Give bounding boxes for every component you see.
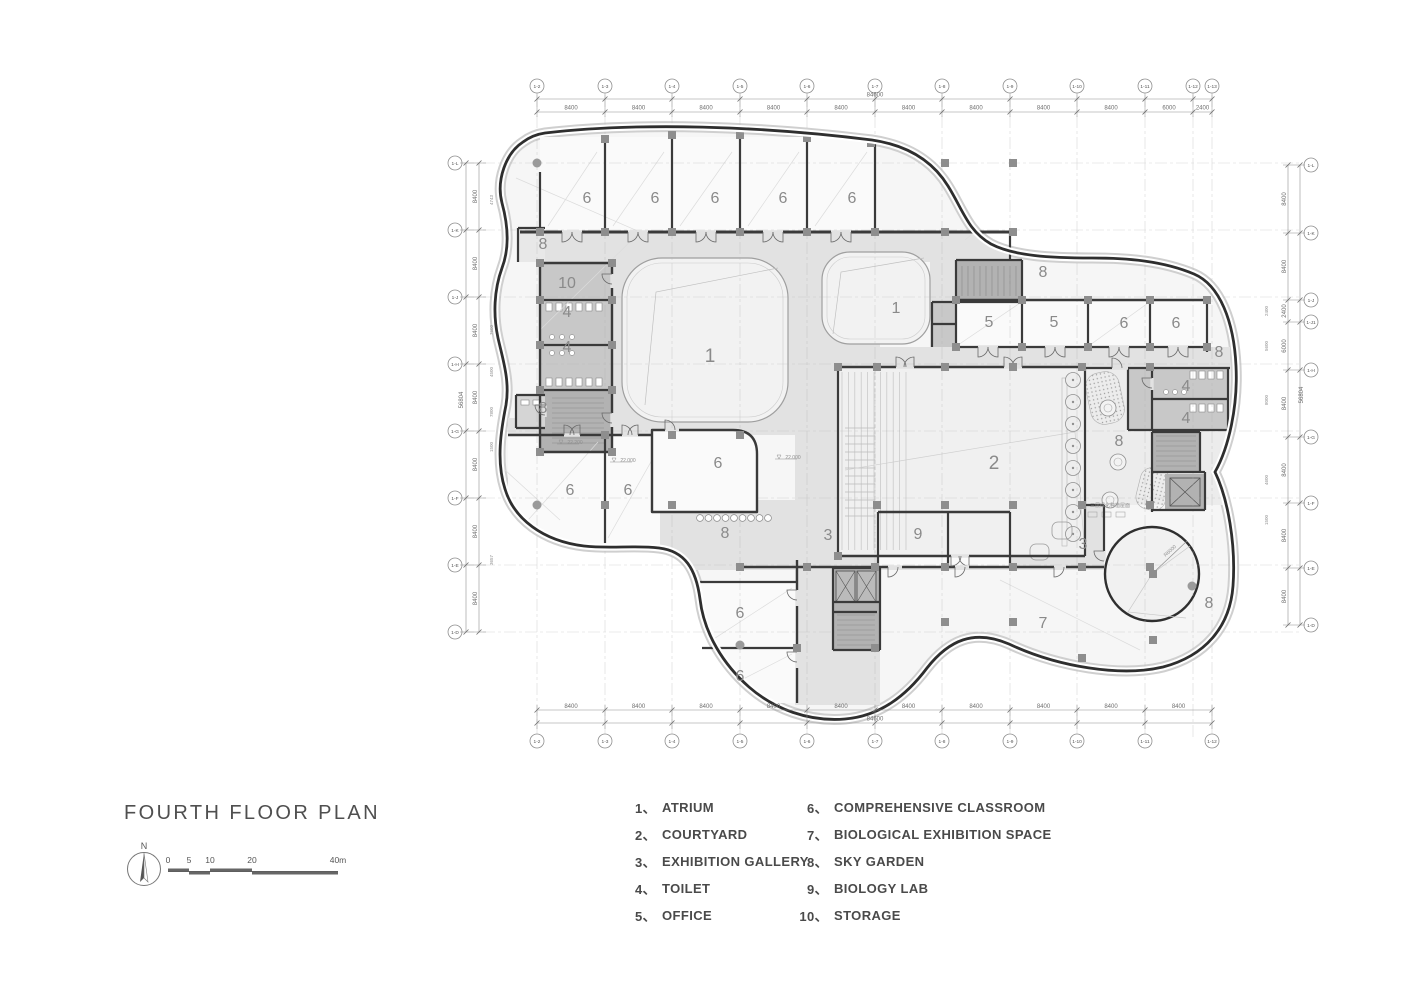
- column: [941, 501, 949, 509]
- column: [952, 296, 960, 304]
- grid-bubble-label: 1-12: [1188, 84, 1198, 90]
- column: [601, 228, 609, 236]
- dim-text: 8400: [473, 256, 479, 270]
- round-column: [533, 159, 542, 168]
- column: [668, 131, 676, 139]
- room-label: 2: [989, 453, 1000, 474]
- grid-bubble-label: 1-J: [1308, 298, 1315, 304]
- grid-bubble-label: 1-E: [1307, 566, 1314, 572]
- grid-bubble-label: 1-L: [452, 161, 459, 167]
- dim-text: 8400: [564, 704, 578, 710]
- grid-bubble-label: 1-6: [804, 739, 811, 745]
- room-label: 6: [1172, 315, 1181, 332]
- grid-bubble-label: 1-7: [872, 739, 879, 745]
- dim-text: 8400: [473, 323, 479, 337]
- room-label: 6: [848, 190, 857, 207]
- column: [608, 259, 616, 267]
- column: [608, 448, 616, 456]
- column: [1203, 343, 1211, 351]
- grid-bubble-label: 1-9: [1007, 739, 1014, 745]
- toilet-stall: [586, 303, 592, 311]
- column: [834, 552, 842, 560]
- grid-bubble-label: 1-G: [451, 429, 459, 435]
- column: [536, 386, 544, 394]
- column: [873, 363, 881, 371]
- room-label: 8: [539, 400, 548, 417]
- room-label: 9: [914, 526, 923, 543]
- page-title: FOURTH FLOOR PLAN: [124, 802, 380, 825]
- grid-bubble-label: 1-12: [1207, 739, 1217, 745]
- fixture: [521, 400, 529, 405]
- column: [536, 228, 544, 236]
- legend-label: OFFICE: [662, 908, 712, 923]
- room-label: 6: [566, 482, 575, 499]
- annotation: 22.000: [785, 455, 801, 461]
- column: [601, 431, 609, 439]
- dim-text: 8400: [1282, 463, 1288, 477]
- dim-sub: 4743: [489, 194, 494, 205]
- toilet-stall: [1199, 371, 1205, 379]
- column: [941, 363, 949, 371]
- room-label: 6: [651, 190, 660, 207]
- sink-icon: [550, 351, 555, 356]
- column: [536, 296, 544, 304]
- column: [1009, 501, 1017, 509]
- round-column: [1188, 582, 1197, 591]
- dim-text: 8400: [1104, 704, 1118, 710]
- room-label: 6: [1120, 315, 1129, 332]
- column: [1078, 563, 1086, 571]
- column: [736, 131, 744, 139]
- stair-core: [956, 260, 1022, 302]
- toilet-stall: [1217, 404, 1223, 412]
- sink-icon: [1173, 390, 1178, 395]
- store-cell: [932, 302, 956, 324]
- annotation: 22.200: [567, 440, 583, 446]
- toilet-stall: [1208, 371, 1214, 379]
- grid-bubble-label: 1-J1: [1306, 320, 1316, 326]
- grid-bubble-label: 1-4: [669, 739, 676, 745]
- grid-bubble-label: 1-6: [804, 84, 811, 90]
- grid-bubble-label: 1-11: [1140, 739, 1150, 745]
- dim-sub: 4600: [1264, 474, 1269, 485]
- dim-sub: 5600: [1264, 340, 1269, 351]
- column: [1203, 296, 1211, 304]
- grid-bubble-label: 1-H: [1307, 368, 1315, 374]
- dim-text: 8400: [473, 189, 479, 203]
- annotation: 22.000: [620, 458, 636, 464]
- sink-icon: [1164, 390, 1169, 395]
- column: [1149, 570, 1157, 578]
- dim-text: 8400: [1282, 192, 1288, 206]
- dim-sub: 3657: [489, 554, 494, 565]
- room-label: 8: [1205, 595, 1214, 612]
- dim-total: 56804: [1299, 386, 1305, 403]
- annotation: 三层绿化种植屋面: [1090, 502, 1130, 509]
- display-table-icon: [705, 515, 712, 522]
- grid-bubble-label: 1-2: [534, 84, 541, 90]
- display-table-icon: [756, 515, 763, 522]
- grid-bubble-label: 1-F: [1307, 501, 1314, 507]
- grid-bubble-label: 1-E: [451, 563, 458, 569]
- legend-num: 7、: [784, 825, 828, 844]
- room-label: 6: [711, 190, 720, 207]
- legend-item: 7、BIOLOGICAL EXHIBITION SPACE: [784, 821, 1052, 848]
- column: [1009, 618, 1017, 626]
- legend-num: 6、: [784, 798, 828, 817]
- legend-item: 3、EXHIBITION GALLERY: [614, 848, 809, 875]
- legend-label: COURTYARD: [662, 827, 747, 842]
- dim-text: 8400: [834, 106, 848, 112]
- grid-bubble-label: 1-H: [451, 362, 459, 368]
- dim-text: 8400: [1172, 704, 1186, 710]
- grid-bubble-label: 1-J: [452, 295, 459, 301]
- legend-item: 10、STORAGE: [784, 902, 1052, 929]
- grid-bubble-label: 1-4: [669, 84, 676, 90]
- dim-text: 8400: [1282, 396, 1288, 410]
- grid-bubble-label: 1-D: [451, 630, 459, 636]
- dim-sub: 8000: [1264, 394, 1269, 405]
- room-label: 3: [824, 527, 833, 544]
- room-label: 6: [624, 482, 633, 499]
- column: [1084, 343, 1092, 351]
- column: [941, 159, 949, 167]
- room-label: 10: [558, 275, 576, 292]
- column: [608, 386, 616, 394]
- dim-total: 56804: [459, 391, 465, 408]
- column: [952, 343, 960, 351]
- legend-item: 1、ATRIUM: [614, 794, 809, 821]
- column: [736, 563, 744, 571]
- legend-num: 5、: [614, 906, 656, 925]
- dim-text: 8400: [969, 106, 983, 112]
- column: [668, 501, 676, 509]
- grid-bubble-label: 1-8: [939, 84, 946, 90]
- grid-bubble-label: 1-10: [1072, 739, 1082, 745]
- toilet-stall: [576, 378, 582, 386]
- column: [871, 644, 879, 652]
- office-band: [956, 300, 1207, 347]
- toilet-stall: [1208, 404, 1214, 412]
- grid-bubble-label: 1-F: [451, 496, 458, 502]
- room-label: 6: [736, 605, 745, 622]
- display-table-icon: [765, 515, 772, 522]
- tree-icon: [1072, 401, 1074, 403]
- legend-label: TOILET: [662, 881, 710, 896]
- tree-icon: [1072, 489, 1074, 491]
- legend-num: 2、: [614, 825, 656, 844]
- toilet-stall: [596, 378, 602, 386]
- grid-bubble-label: 1-8: [939, 739, 946, 745]
- grid-bubble-label: 1-10: [1072, 84, 1082, 90]
- column: [1009, 228, 1017, 236]
- grid-bubble-label: 1-L: [1308, 163, 1315, 169]
- column: [601, 135, 609, 143]
- grid-bubble-label: 1-9: [1007, 84, 1014, 90]
- sink-icon: [550, 335, 555, 340]
- scale-tick: 10: [205, 855, 215, 865]
- room-label: 6: [714, 455, 723, 472]
- column: [1009, 363, 1017, 371]
- column: [871, 228, 879, 236]
- legend-label: BIOLOGICAL EXHIBITION SPACE: [834, 827, 1052, 842]
- legend-label: COMPREHENSIVE CLASSROOM: [834, 800, 1045, 815]
- toilet-stall: [566, 378, 572, 386]
- column: [1018, 343, 1026, 351]
- column: [873, 501, 881, 509]
- planter-icon: [1110, 454, 1126, 470]
- column: [1078, 654, 1086, 662]
- column: [1146, 563, 1154, 571]
- toilet-stall: [576, 303, 582, 311]
- page: 666668104411855668442886668393766822.200…: [0, 0, 1414, 1000]
- dim-text: 8400: [1037, 704, 1051, 710]
- room-label: 5: [1050, 314, 1059, 331]
- tree-icon: [1072, 511, 1074, 513]
- grid-bubble-label: 1-2: [534, 739, 541, 745]
- legend-label: BIOLOGY LAB: [834, 881, 928, 896]
- column: [536, 259, 544, 267]
- column: [941, 618, 949, 626]
- dim-text: 8400: [632, 704, 646, 710]
- dim-total: 84600: [867, 93, 884, 99]
- toilet-stall: [1217, 371, 1223, 379]
- grid-bubble-label: 1-5: [737, 739, 744, 745]
- classroom-rounded: [652, 430, 757, 512]
- dim-text: 8400: [473, 591, 479, 605]
- room-label: 4: [1182, 378, 1191, 395]
- dim-text: 8400: [767, 106, 781, 112]
- tree-icon: [1072, 379, 1074, 381]
- column: [1149, 636, 1157, 644]
- dim-text: 2400: [1196, 106, 1210, 112]
- dim-text: 8400: [1282, 528, 1288, 542]
- dim-sub: 1500: [489, 441, 494, 452]
- grid-bubble-label: 1-3: [602, 84, 609, 90]
- room-label: 7: [1039, 615, 1048, 632]
- grid-bubble-label: 1-G: [1307, 435, 1315, 441]
- toilet-stall: [546, 303, 552, 311]
- legend-item: 8、SKY GARDEN: [784, 848, 1052, 875]
- scale-tick: 0: [166, 855, 171, 865]
- dim-text: 8400: [1104, 106, 1118, 112]
- legend-column-1: 1、ATRIUM 2、COURTYARD 3、EXHIBITION GALLER…: [614, 794, 809, 929]
- room-label: 4: [1182, 410, 1191, 427]
- column: [536, 341, 544, 349]
- dim-text: 8400: [1037, 106, 1051, 112]
- room-label: 8: [1039, 264, 1048, 281]
- grid-bubble-label: 1-13: [1207, 84, 1217, 90]
- room-label: 6: [583, 190, 592, 207]
- dim-sub: 7800: [489, 406, 494, 417]
- legend-label: STORAGE: [834, 908, 901, 923]
- dim-sub: 1500: [1264, 514, 1269, 525]
- dim-text: 8400: [767, 704, 781, 710]
- corridor: [540, 232, 1010, 262]
- legend-num: 3、: [614, 852, 656, 871]
- dim-text: 8400: [902, 106, 916, 112]
- north-label: N: [141, 841, 148, 851]
- grid-bubble-label: 1-5: [737, 84, 744, 90]
- scale-bar: 0 5 10 20 40m: [166, 855, 347, 875]
- dim-text: 8400: [473, 390, 479, 404]
- legend-num: 10、: [784, 906, 828, 925]
- column: [803, 563, 811, 571]
- grid-bubble-label: 1-D: [1307, 623, 1315, 629]
- display-table-icon: [748, 515, 755, 522]
- legend-item: 4、TOILET: [614, 875, 809, 902]
- room-label: 6: [779, 190, 788, 207]
- column: [1146, 296, 1154, 304]
- column: [941, 228, 949, 236]
- dim-text: 8400: [969, 704, 983, 710]
- legend-item: 5、OFFICE: [614, 902, 809, 929]
- scale-tick: 20: [247, 855, 257, 865]
- legend-item: 2、COURTYARD: [614, 821, 809, 848]
- column: [608, 296, 616, 304]
- column: [1009, 563, 1017, 571]
- legend-label: SKY GARDEN: [834, 854, 924, 869]
- column: [601, 501, 609, 509]
- column: [1009, 159, 1017, 167]
- legend-num: 8、: [784, 852, 828, 871]
- north-arrow-icon: N: [128, 841, 161, 886]
- dim-text: 8400: [699, 106, 713, 112]
- dim-sub: 2400: [1264, 305, 1269, 316]
- grid-bubble-label: 1-K: [451, 228, 459, 234]
- room-label: 4: [563, 304, 572, 321]
- room-label: 3: [1079, 536, 1088, 553]
- grid-bubble-label: 1-11: [1140, 84, 1150, 90]
- north-and-scale: N 0 5 10 20 40m: [116, 835, 416, 905]
- dim-text: 8400: [564, 106, 578, 112]
- toilet-stall: [546, 378, 552, 386]
- room-label: 8: [1215, 344, 1224, 361]
- tree-icon: [1072, 445, 1074, 447]
- column: [1146, 363, 1154, 371]
- display-table-icon: [697, 515, 704, 522]
- column: [536, 448, 544, 456]
- legend-column-2: 6、COMPREHENSIVE CLASSROOM 7、BIOLOGICAL E…: [784, 794, 1052, 929]
- legend-label: ATRIUM: [662, 800, 714, 815]
- display-table-icon: [714, 515, 721, 522]
- display-table-icon: [731, 515, 738, 522]
- room-label: 1: [705, 346, 716, 367]
- column: [871, 563, 879, 571]
- grid-bubble-label: 1-3: [602, 739, 609, 745]
- column: [1078, 363, 1086, 371]
- grid-bubble-label: 1-K: [1307, 231, 1315, 237]
- dim-text: 8400: [699, 704, 713, 710]
- room-label: 5: [985, 314, 994, 331]
- column: [736, 228, 744, 236]
- column: [668, 431, 676, 439]
- column: [1146, 501, 1154, 509]
- room-label: 8: [721, 525, 730, 542]
- dim-text: 8400: [1282, 259, 1288, 273]
- room-label: 8: [1115, 433, 1124, 450]
- dim-text: 8400: [834, 704, 848, 710]
- column: [793, 644, 801, 652]
- planter-icon: [1100, 400, 1116, 416]
- column: [668, 228, 676, 236]
- scale-tick: 5: [187, 855, 192, 865]
- column: [1018, 296, 1026, 304]
- dim-text: 6000: [1282, 339, 1288, 353]
- legend-item: 6、COMPREHENSIVE CLASSROOM: [784, 794, 1052, 821]
- column: [1078, 501, 1086, 509]
- dim-text: 8400: [1282, 589, 1288, 603]
- round-column: [736, 641, 745, 650]
- grid-bubble-label: 1-7: [872, 84, 879, 90]
- tree-icon: [1072, 467, 1074, 469]
- dim-text: 8400: [632, 106, 646, 112]
- dim-sub: 7600: [489, 324, 494, 335]
- dim-text: 8400: [473, 457, 479, 471]
- scale-tick: 40m: [330, 855, 347, 865]
- legend-num: 9、: [784, 879, 828, 898]
- legend-item: 9、BIOLOGY LAB: [784, 875, 1052, 902]
- column: [1146, 343, 1154, 351]
- dim-text: 2400: [1282, 304, 1288, 318]
- display-table-icon: [722, 515, 729, 522]
- dim-text: 8400: [902, 704, 916, 710]
- toilet-stall: [556, 378, 562, 386]
- tree-icon: [1072, 423, 1074, 425]
- dim-total: 84600: [867, 717, 884, 723]
- toilet-stall: [586, 378, 592, 386]
- legend-num: 4、: [614, 879, 656, 898]
- room-label: 1: [892, 300, 901, 317]
- column: [608, 341, 616, 349]
- toilet-stall: [596, 303, 602, 311]
- dim-text: 8400: [473, 524, 479, 538]
- column: [1084, 296, 1092, 304]
- classroom-band: [540, 137, 875, 232]
- legend-num: 1、: [614, 798, 656, 817]
- column: [941, 563, 949, 571]
- column: [803, 228, 811, 236]
- column: [834, 363, 842, 371]
- column: [736, 431, 744, 439]
- dim-sub: 4500: [489, 366, 494, 377]
- dim-text: 6000: [1162, 106, 1176, 112]
- toilet-stall: [1199, 404, 1205, 412]
- room-label: 8: [539, 236, 548, 253]
- round-column: [533, 501, 542, 510]
- room-label: 4: [563, 339, 572, 356]
- room-label: 6: [736, 668, 745, 685]
